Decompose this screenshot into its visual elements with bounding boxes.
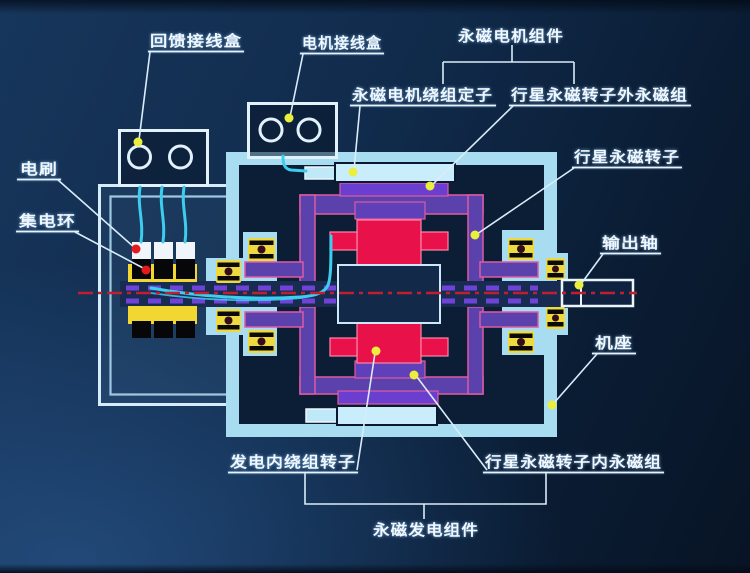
label-pm-motor-assembly: 永磁电机组件 — [457, 27, 564, 45]
label-planet-rotor-inner-pm: 行星永磁转子内永磁组 — [484, 453, 662, 471]
marker-dot — [471, 231, 480, 240]
label-gen-inner-winding-rotor: 发电内绕组转子 — [229, 453, 356, 471]
diagram-canvas: 回馈接线盒 电机接线盒 永磁电机组件 永磁电机绕组定子 行星永磁转子外永磁组 行… — [0, 0, 750, 573]
label-planet-pm-rotor: 行星永磁转子 — [573, 148, 680, 166]
marker-dot — [426, 182, 435, 191]
label-motor-junction-box: 电机接线盒 — [302, 34, 382, 52]
marker-dot — [349, 168, 358, 177]
marker-dot — [285, 114, 294, 123]
bearing-icon — [546, 258, 565, 280]
brush-caps — [132, 242, 195, 259]
pm-motor-generator-cutaway: 回馈接线盒 电机接线盒 永磁电机组件 永磁电机绕组定子 行星永磁转子外永磁组 行… — [0, 0, 750, 573]
marker-dot — [548, 401, 557, 410]
marker-dot — [410, 371, 419, 380]
bearing-icon — [508, 331, 534, 353]
label-pm-motor-stator-winding: 永磁电机绕组定子 — [351, 86, 493, 104]
marker-dot — [372, 347, 381, 356]
label-pm-generator-assembly: 永磁发电组件 — [372, 521, 479, 539]
pm-generator-assembly-bracket — [305, 473, 546, 519]
marker-dot-red — [132, 245, 141, 254]
marker-dot — [134, 138, 143, 147]
bearing-icon — [216, 309, 241, 332]
label-planet-rotor-outer-pm: 行星永磁转子外永磁组 — [510, 86, 688, 104]
motor-junction-box — [249, 104, 337, 158]
bearing-icon — [248, 238, 275, 261]
bearing-icon — [216, 260, 241, 283]
bearing-icon — [248, 330, 275, 353]
label-brush: 电刷 — [20, 160, 58, 178]
bearing-icon — [508, 238, 534, 260]
bearing-icon — [546, 307, 565, 329]
feedback-junction-box — [120, 131, 208, 186]
label-output-shaft: 输出轴 — [602, 234, 659, 252]
label-feedback-junction-box: 回馈接线盒 — [150, 32, 242, 50]
label-slip-ring: 集电环 — [18, 212, 76, 230]
label-machine-frame: 机座 — [595, 334, 633, 352]
marker-dot — [575, 281, 584, 290]
pm-motor-assembly-bracket — [443, 45, 574, 84]
marker-dot-red — [142, 266, 151, 275]
